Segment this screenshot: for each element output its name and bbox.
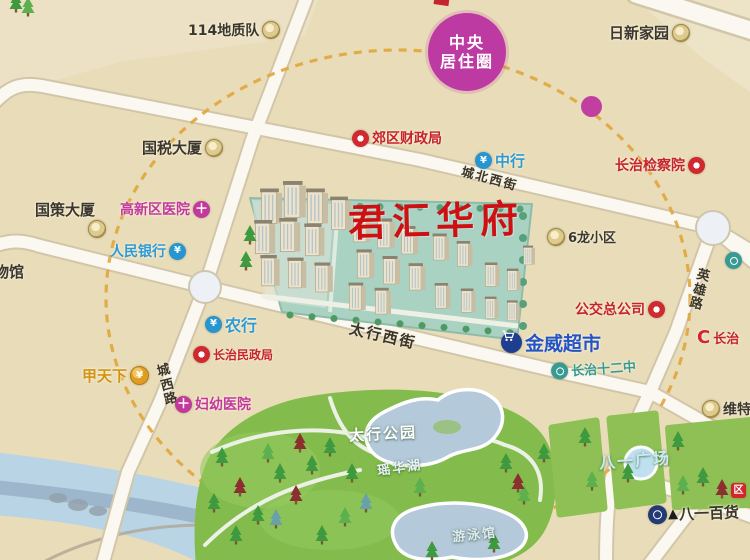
bank-icon: ¥: [169, 243, 186, 260]
badge-icon: [205, 139, 223, 157]
poi-label: 国税大厦: [142, 137, 202, 158]
poi-label: 八一百货: [679, 501, 740, 524]
poi-dizhidui[interactable]: 114地质队: [188, 20, 280, 40]
poi-guoce-badge[interactable]: [88, 220, 109, 238]
cross-icon: ＋: [175, 396, 192, 413]
poi-label: 日新家园: [609, 22, 669, 43]
terrain-art: [0, 0, 750, 560]
donut-icon: [688, 157, 705, 174]
project-title: 君汇华府: [347, 188, 524, 248]
cart-icon: [501, 332, 522, 353]
poi-label: 长治: [713, 328, 739, 347]
donut-icon: [352, 130, 369, 147]
poi-gaoxinqu-yiyuan[interactable]: 高新区医院＋: [120, 199, 210, 219]
poi-label: 维特: [723, 399, 750, 419]
central-living-circle-badge[interactable]: 中央 居住圈: [428, 13, 506, 91]
poi-label: 人民银行: [110, 241, 166, 261]
tealc-icon: [725, 252, 742, 269]
poi-label: 114地质队: [188, 20, 259, 40]
poi-label: 妇幼医院: [195, 394, 251, 414]
badge-icon: [88, 220, 106, 238]
map-canvas: 114地质队国税大厦日新家园郊区财政局¥中行长治检察院国策大厦高新区医院＋人民银…: [0, 0, 750, 560]
poi-jianchayuan[interactable]: 长治检察院: [615, 155, 705, 175]
poi-label: 国策大厦: [35, 199, 95, 220]
poi-label: 金威超市: [525, 329, 601, 356]
donut-icon: [193, 346, 210, 363]
badge-icon: [547, 228, 565, 246]
poi-edge-teal-marker[interactable]: [725, 252, 745, 269]
bank-icon: ¥: [205, 316, 222, 333]
poi-bayi-baihuo[interactable]: ▲八一百货: [648, 501, 740, 525]
poi-rixin-jiayuan[interactable]: 日新家园: [609, 22, 690, 43]
poi-label: 长治检察院: [615, 155, 685, 175]
poi-label: 高新区医院: [120, 199, 190, 219]
tealc-icon: [551, 362, 569, 380]
poi-nonghang[interactable]: ¥农行: [205, 312, 257, 336]
roundabout-west: [189, 271, 221, 303]
redsq-icon: 区: [731, 483, 746, 498]
poi-renmin-yinhang[interactable]: 人民银行¥: [110, 241, 186, 261]
poi-jinwei-chaoshi[interactable]: 金威超市: [501, 329, 601, 356]
badge-icon: [262, 21, 280, 39]
poi-guoshui-dasha[interactable]: 国税大厦: [142, 137, 223, 158]
poi-jiatianxia[interactable]: 甲天下¥: [82, 365, 149, 386]
poi-label: 长治民政局: [213, 346, 273, 363]
area-label-taihang-gongyuan: 太行公园: [348, 421, 417, 446]
area-label-bayi-guangchang: 八一广场: [598, 445, 672, 474]
donut-icon: [648, 301, 665, 318]
poi-label: 物馆: [0, 261, 24, 282]
poi-label: 郊区财政局: [372, 128, 442, 148]
ground-patches: [0, 0, 750, 96]
cross-icon: ＋: [193, 201, 210, 218]
poi-label: 农行: [225, 312, 257, 336]
poi-gongjiao-zonggongsi[interactable]: 公交总公司: [575, 299, 665, 319]
badge-icon: [702, 400, 720, 418]
poi-label: 中行: [495, 150, 525, 171]
park: [195, 390, 556, 560]
poi-guoce-dasha[interactable]: 国策大厦: [35, 199, 95, 220]
ring-node-dot: [581, 96, 602, 117]
poi-fuyou-yiyuan[interactable]: ＋妇幼医院: [175, 394, 251, 414]
poi-liulong-xiaoqu[interactable]: 6龙小区: [547, 227, 616, 246]
poi-edge-changzhi[interactable]: C长治: [697, 328, 739, 347]
poi-wuguan[interactable]: 物馆: [0, 261, 24, 282]
mountain-icon: ▲: [668, 508, 678, 521]
poi-weite[interactable]: 维特: [702, 399, 750, 419]
bank-icon: ¥: [475, 152, 492, 169]
poi-label: 6龙小区: [568, 227, 616, 246]
poi-zhonghang[interactable]: ¥中行: [475, 150, 525, 171]
roundabout-east: [696, 211, 730, 245]
clogo-icon: C: [697, 329, 710, 347]
badge-line1: 中央: [449, 33, 485, 52]
coin-icon: ¥: [130, 366, 149, 385]
badge-icon: [672, 24, 690, 42]
poi-minzhengju[interactable]: 长治民政局: [193, 346, 273, 363]
poi-label: 甲天下: [82, 365, 127, 386]
badge-line2: 居住圈: [440, 52, 494, 71]
poi-label: 公交总公司: [575, 299, 645, 319]
store-icon: [648, 505, 668, 525]
poi-edge-red-marker[interactable]: 区: [731, 483, 749, 498]
poi-jiaoqu-caizhengju[interactable]: 郊区财政局: [352, 128, 442, 148]
